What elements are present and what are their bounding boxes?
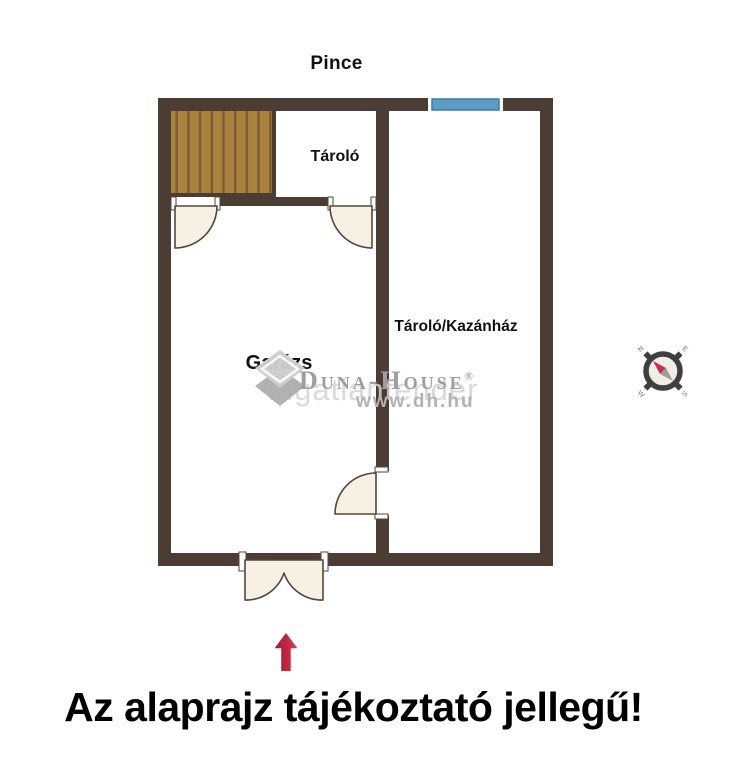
- entrance-arrow-icon: [271, 632, 301, 672]
- floorplan-page: Pince: [0, 0, 737, 768]
- entrance-double-door: [245, 560, 323, 600]
- door-jambs: [171, 197, 388, 571]
- wall-left: [158, 98, 171, 566]
- door-boiler-room: [335, 473, 376, 514]
- room-label-storage-boiler: Tároló/Kazánház: [376, 318, 536, 336]
- wall-right: [540, 98, 553, 566]
- room-label-storage: Tároló: [285, 148, 385, 166]
- door-garage-left: [175, 206, 217, 248]
- compass-icon: N E S W: [634, 342, 692, 400]
- door-storage: [330, 206, 372, 248]
- window: [428, 98, 503, 111]
- compass-west-label: W: [636, 390, 646, 400]
- doors: [175, 206, 376, 600]
- room-label-garage: Garázs: [229, 352, 329, 375]
- compass-north-label: N: [637, 345, 646, 354]
- compass-east-label: E: [681, 345, 689, 353]
- disclaimer-text: Az alaprajz tájékoztató jellegű!: [0, 684, 737, 731]
- stairs: [171, 111, 276, 201]
- wall-bottom: [158, 553, 553, 566]
- floorplan-drawing: [0, 0, 737, 768]
- compass-south-label: S: [681, 390, 689, 398]
